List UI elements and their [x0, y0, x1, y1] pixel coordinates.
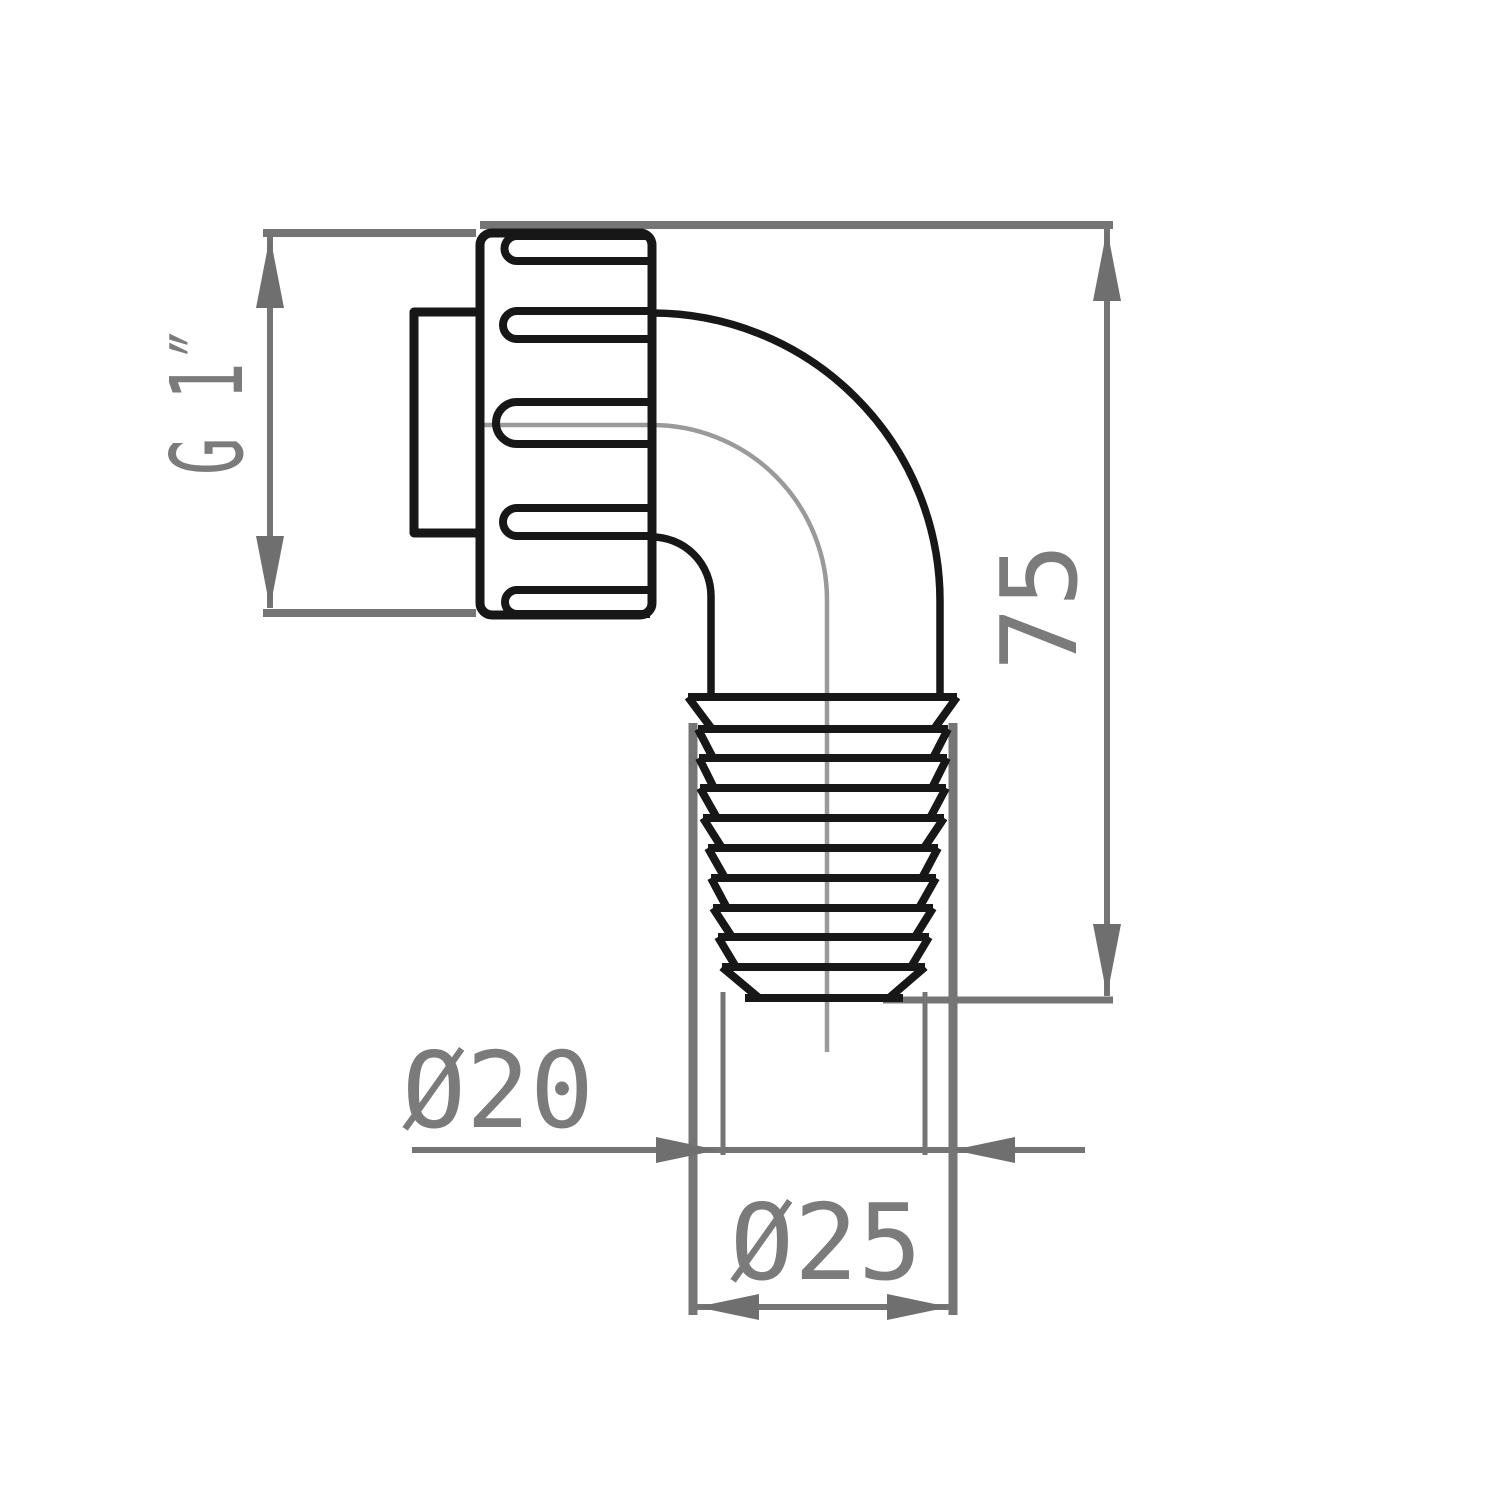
d20-arrow-right: [953, 1137, 1015, 1163]
barb-slant-left-9: [718, 937, 736, 967]
barb-slant-left-7: [711, 878, 727, 908]
barb-slant-right-7: [919, 878, 936, 908]
elbow-inner-wall: [652, 537, 711, 699]
fitting-outline: [414, 233, 957, 998]
barb-slant-left-6: [708, 848, 725, 878]
g1-label: G 1″: [149, 325, 266, 475]
barb-slant-left-3: [699, 758, 714, 788]
barb-slant-right-8: [915, 908, 933, 937]
barb-slant-left-8: [713, 908, 732, 937]
barb-slant-right-4: [930, 788, 946, 818]
d20-arrow-left: [656, 1137, 718, 1163]
barb-slant-right-3: [932, 758, 947, 788]
elbow-outer-wall: [652, 313, 940, 699]
barb-slant-right-2: [933, 729, 948, 758]
barb-slant-left-5: [703, 818, 722, 848]
d20-label: Ø20: [402, 1030, 594, 1152]
barb-slant-left-2: [698, 729, 713, 758]
h75-label: 75: [979, 543, 1101, 671]
dimension-labels: G 1″75Ø20Ø25: [149, 325, 1101, 1304]
barb-slant-right-10: [889, 967, 925, 998]
g1-arrow-down: [256, 536, 284, 608]
h75-arrow-up: [1093, 229, 1121, 301]
barb-slant-left-4: [700, 788, 717, 818]
barb-slant-right-9: [911, 937, 929, 967]
barb-slant-right-5: [924, 818, 944, 848]
nut-knurl-slot-1: [505, 236, 651, 261]
d25-label: Ø25: [730, 1182, 922, 1304]
pipe-stub: [414, 312, 480, 533]
h75-arrow-down: [1093, 924, 1121, 996]
nut-knurl-slot-5: [505, 590, 650, 614]
technical-drawing: G 1″75Ø20Ø25: [0, 0, 1500, 1500]
barb-slant-right-6: [922, 848, 938, 878]
g1-arrow-up: [256, 236, 284, 308]
nut-knurl-slot-2: [503, 311, 650, 339]
drawing-canvas: G 1″75Ø20Ø25: [0, 0, 1500, 1500]
nut-knurl-slot-4: [503, 508, 650, 536]
barb-slant-left-10: [722, 967, 759, 998]
